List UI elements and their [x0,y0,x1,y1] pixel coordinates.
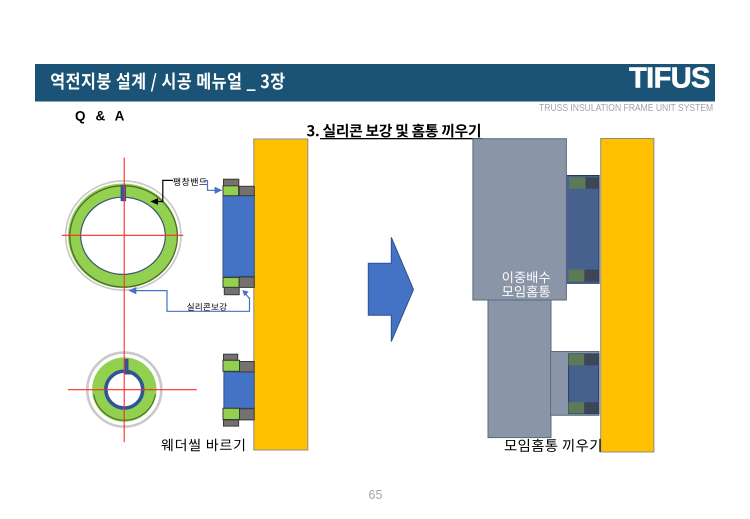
svg-text:TIFUS: TIFUS [629,62,710,94]
svg-text:Q & A: Q & A [75,109,128,124]
svg-text:TRUSS INSULATION FRAME UNIT SY: TRUSS INSULATION FRAME UNIT SYSTEM [539,101,713,113]
svg-text:65: 65 [369,488,383,502]
